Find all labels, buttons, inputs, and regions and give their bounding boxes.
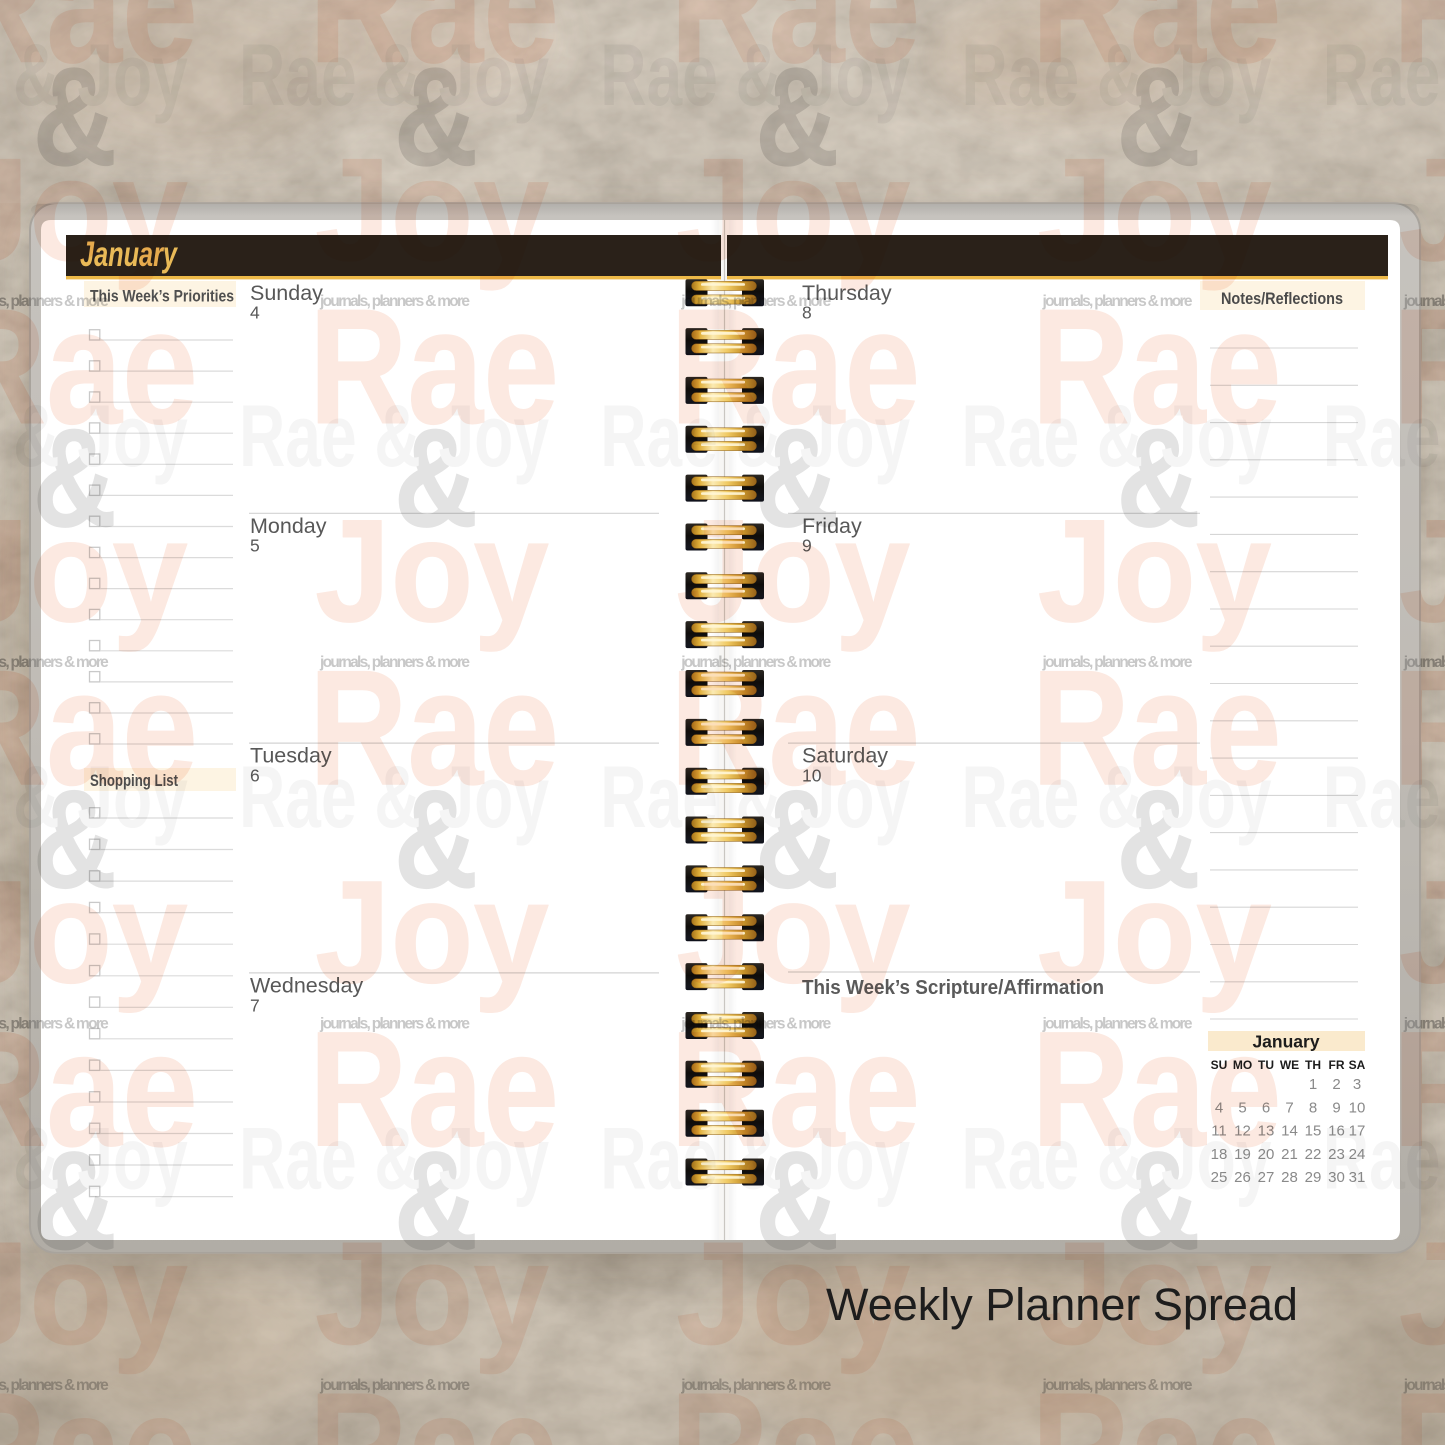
svg-text:5: 5 (250, 536, 260, 556)
svg-text:7: 7 (250, 996, 260, 1016)
svg-text:123: 123 (1309, 1076, 1361, 1093)
svg-text:Weekly Planner Spread: Weekly Planner Spread (826, 1279, 1298, 1330)
svg-text:4: 4 (250, 303, 260, 323)
